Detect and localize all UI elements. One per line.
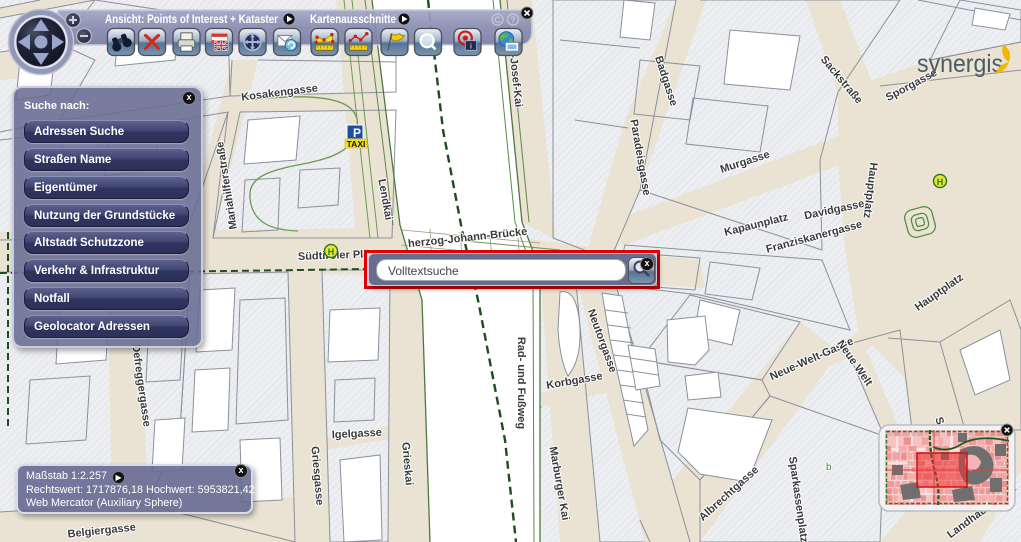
svg-text:i: i [470, 44, 472, 51]
svg-text:C: C [494, 15, 501, 25]
svg-text:Kartenausschnitte: Kartenausschnitte [310, 12, 396, 26]
svg-text:?: ? [510, 15, 516, 25]
svg-text:Ansicht: Points of Interest +: Ansicht: Points of Interest + Kataster [105, 12, 278, 26]
svg-text:synergis: synergis [917, 50, 1003, 78]
